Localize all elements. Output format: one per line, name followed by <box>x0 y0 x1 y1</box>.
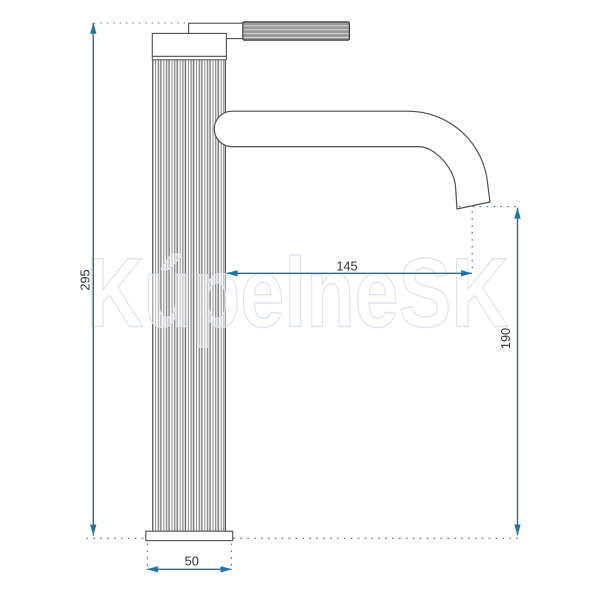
svg-text:KúpelneSK: KúpelneSK <box>87 238 509 348</box>
svg-text:295: 295 <box>77 269 92 290</box>
svg-text:50: 50 <box>185 553 199 568</box>
svg-text:145: 145 <box>336 258 357 273</box>
svg-text:190: 190 <box>498 328 513 349</box>
